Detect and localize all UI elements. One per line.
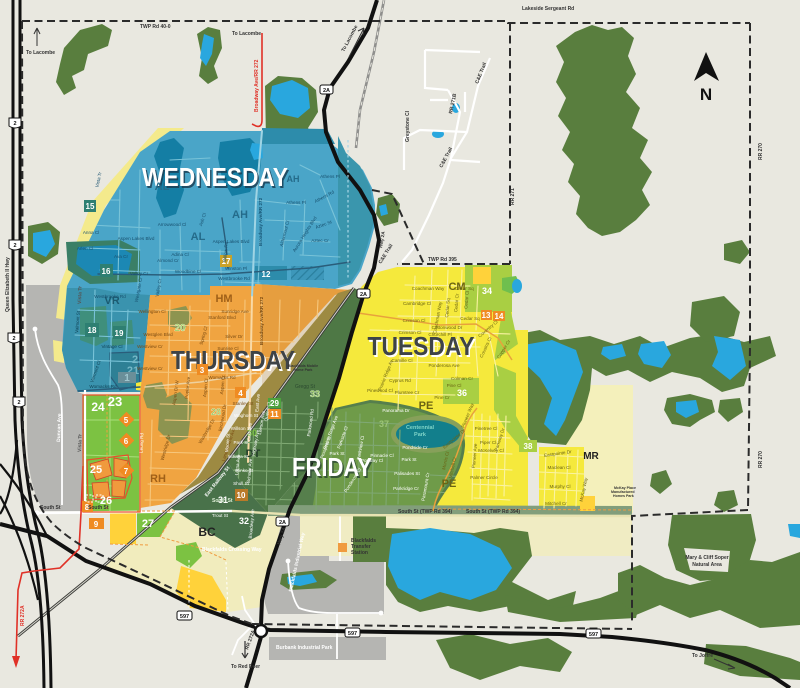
svg-text:Cambridge Cl: Cambridge Cl (403, 301, 431, 306)
svg-text:Colman Cr: Colman Cr (451, 376, 473, 381)
svg-text:15: 15 (86, 202, 95, 211)
svg-text:Pinetree Cl: Pinetree Cl (475, 426, 498, 431)
svg-text:Palisades St: Palisades St (394, 471, 420, 476)
svg-text:Pinewood Cl: Pinewood Cl (367, 388, 393, 393)
svg-text:Pine Cl: Pine Cl (447, 383, 462, 388)
svg-text:Westview Cr: Westview Cr (137, 344, 163, 349)
svg-text:2A: 2A (279, 520, 286, 526)
svg-text:Parkridge Cr: Parkridge Cr (393, 486, 419, 491)
svg-text:24: 24 (91, 400, 105, 414)
svg-text:7: 7 (124, 467, 129, 476)
svg-text:TWP Rd 40-0: TWP Rd 40-0 (140, 24, 171, 30)
svg-text:Coachman Way: Coachman Way (412, 286, 445, 291)
svg-text:Aspen Lakes Blvd: Aspen Lakes Blvd (213, 239, 250, 244)
svg-text:Vista Tr: Vista Tr (77, 434, 84, 452)
svg-text:Cottonwood Dr: Cottonwood Dr (432, 325, 463, 330)
svg-text:Westbrooke Rd: Westbrooke Rd (218, 276, 250, 281)
svg-text:Duncan Ave: Duncan Ave (56, 413, 63, 442)
svg-text:6: 6 (124, 437, 129, 446)
svg-text:Blackfalds Crossing Way: Blackfalds Crossing Way (202, 547, 262, 553)
svg-text:Sunridge Ave: Sunridge Ave (221, 309, 249, 314)
svg-text:1: 1 (124, 373, 130, 384)
svg-text:To Red Deer: To Red Deer (231, 664, 260, 670)
svg-text:Waghorn St: Waghorn St (234, 413, 259, 418)
svg-text:4: 4 (238, 389, 243, 398)
svg-text:Broadway Ave/RR 272: Broadway Ave/RR 272 (254, 59, 260, 112)
svg-text:Stanley St: Stanley St (233, 401, 255, 406)
svg-text:Westglen Blvd: Westglen Blvd (143, 332, 173, 337)
svg-text:RR 270: RR 270 (758, 143, 764, 160)
svg-text:Park St: Park St (401, 457, 417, 462)
svg-text:N: N (700, 85, 712, 104)
svg-text:Park St: Park St (329, 451, 345, 456)
svg-text:Vintage Cl: Vintage Cl (101, 344, 122, 349)
svg-text:TUESDAY: TUESDAY (368, 331, 475, 361)
svg-text:PE: PE (442, 478, 457, 490)
svg-text:18: 18 (88, 326, 97, 335)
svg-text:25: 25 (90, 464, 102, 476)
svg-text:HM: HM (215, 293, 232, 305)
svg-text:Churchill Pl: Churchill Pl (428, 332, 451, 337)
svg-text:Stanford Blvd: Stanford Blvd (208, 315, 236, 320)
svg-text:Westview Cr: Westview Cr (137, 366, 163, 371)
svg-text:Pondside Cr: Pondside Cr (402, 445, 428, 450)
svg-text:PE: PE (419, 400, 434, 412)
svg-text:AL: AL (191, 231, 206, 243)
svg-text:Broadway Ave/RR 272: Broadway Ave/RR 272 (259, 296, 264, 345)
svg-text:Murphy Cl: Murphy Cl (550, 484, 571, 489)
svg-text:Homes Park: Homes Park (613, 494, 634, 498)
svg-text:23: 23 (108, 394, 122, 409)
svg-text:Greystone Cl: Greystone Cl (405, 110, 411, 142)
svg-text:12: 12 (262, 270, 271, 279)
svg-text:Ponderosa Ave: Ponderosa Ave (428, 363, 460, 368)
svg-text:South St: South St (88, 505, 109, 511)
svg-text:Panorama Dr: Panorama Dr (382, 408, 410, 413)
svg-text:Cyprus Rd: Cyprus Rd (389, 378, 411, 383)
svg-text:Gregg St: Gregg St (295, 384, 316, 390)
svg-text:TWP Rd 395: TWP Rd 395 (428, 257, 457, 263)
svg-text:Station: Station (351, 550, 368, 556)
svg-text:Aztec Cr: Aztec Cr (311, 238, 329, 243)
svg-text:South St: South St (40, 505, 61, 511)
svg-text:Anna Cl: Anna Cl (83, 230, 99, 235)
svg-text:Cedar Sq: Cedar Sq (460, 316, 480, 321)
svg-text:Mary & Cliff Soper: Mary & Cliff Soper (685, 555, 728, 561)
svg-text:Mitchell Cr: Mitchell Cr (545, 501, 567, 506)
svg-text:AH: AH (232, 209, 248, 221)
svg-text:Vista Tr: Vista Tr (77, 286, 84, 304)
svg-text:Athens Pl: Athens Pl (286, 200, 306, 205)
svg-text:Winston Pl: Winston Pl (225, 266, 247, 271)
svg-text:AH: AH (287, 174, 300, 184)
svg-text:27: 27 (142, 518, 154, 530)
svg-text:Westbrooke Rd: Westbrooke Rd (94, 294, 126, 299)
svg-text:16: 16 (102, 267, 111, 276)
svg-text:Arlen Cl: Arlen Cl (77, 246, 93, 251)
svg-text:Leung Rd: Leung Rd (139, 432, 145, 453)
svg-text:Centennial: Centennial (406, 425, 435, 431)
svg-text:To Lacombe: To Lacombe (26, 50, 55, 56)
svg-text:Silver Dr: Silver Dr (225, 334, 243, 339)
svg-text:2A: 2A (360, 292, 367, 298)
svg-text:Adina Cl: Adina Cl (171, 252, 188, 257)
svg-text:Broadway Ave/RR 272: Broadway Ave/RR 272 (258, 197, 263, 246)
svg-text:11: 11 (270, 410, 279, 419)
svg-text:19: 19 (115, 329, 124, 338)
svg-text:Maclean Cl: Maclean Cl (548, 465, 571, 470)
svg-text:Burbank Industrial Park: Burbank Industrial Park (276, 645, 333, 651)
svg-text:Womacks Rd: Womacks Rd (89, 384, 117, 389)
svg-text:Plumtree Cr: Plumtree Cr (395, 390, 420, 395)
svg-text:Piper Cl: Piper Cl (480, 440, 496, 445)
svg-text:Lakeside Sergeant Rd: Lakeside Sergeant Rd (522, 6, 574, 12)
svg-text:RR 271: RR 271 (510, 188, 516, 205)
svg-text:Arrowwood Cl: Arrowwood Cl (158, 222, 187, 227)
svg-text:34: 34 (482, 286, 492, 296)
svg-text:South St (TWP Rd 394): South St (TWP Rd 394) (398, 509, 452, 515)
svg-text:BC: BC (198, 525, 216, 539)
svg-text:McKelvey Cl: McKelvey Cl (478, 448, 504, 453)
svg-text:South St: South St (212, 498, 233, 504)
svg-text:Palmer Circle: Palmer Circle (470, 475, 498, 480)
svg-text:Home Park: Home Park (294, 368, 313, 372)
svg-text:Valley Cr: Valley Cr (130, 271, 149, 276)
svg-text:2: 2 (13, 243, 16, 249)
svg-text:Crimson Cl: Crimson Cl (403, 318, 426, 323)
svg-text:38: 38 (524, 442, 533, 451)
svg-text:To Joffre: To Joffre (692, 653, 713, 659)
svg-text:Park: Park (414, 432, 427, 438)
svg-text:AL: AL (155, 181, 170, 193)
svg-text:Wellington Cl: Wellington Cl (139, 309, 166, 314)
svg-text:2: 2 (12, 336, 15, 342)
svg-text:Queen Elizabeth II Hwy: Queen Elizabeth II Hwy (5, 257, 11, 312)
svg-text:597: 597 (348, 631, 357, 637)
svg-text:36: 36 (457, 388, 467, 398)
svg-text:2: 2 (13, 121, 16, 127)
svg-text:10: 10 (237, 491, 246, 500)
svg-text:RH: RH (150, 473, 166, 485)
svg-text:Portway Cl: Portway Cl (361, 458, 383, 463)
svg-text:Camille Cl: Camille Cl (392, 358, 413, 363)
svg-text:2A: 2A (323, 88, 330, 94)
svg-text:Athens Pl: Athens Pl (320, 174, 340, 179)
svg-text:37: 37 (379, 419, 389, 429)
svg-text:32: 32 (239, 516, 249, 526)
svg-text:MR: MR (583, 451, 599, 462)
svg-text:Cedar Sq: Cedar Sq (454, 286, 474, 291)
svg-text:33: 33 (310, 389, 320, 399)
svg-text:Aspen Lakes Blvd: Aspen Lakes Blvd (118, 236, 155, 241)
svg-text:RR 270: RR 270 (758, 451, 764, 468)
svg-text:South St (TWP Rd 394): South St (TWP Rd 394) (466, 509, 520, 515)
svg-text:5: 5 (124, 416, 129, 425)
svg-text:Trout St: Trout St (212, 513, 229, 518)
svg-text:Woodbine Cl: Woodbine Cl (175, 269, 201, 274)
svg-text:13: 13 (482, 311, 491, 320)
svg-text:Pine Cr: Pine Cr (434, 395, 450, 400)
svg-text:20: 20 (174, 323, 186, 334)
svg-text:Sunrise Cl: Sunrise Cl (217, 346, 238, 351)
svg-text:To Lacombe: To Lacombe (232, 31, 261, 37)
svg-text:597: 597 (180, 614, 189, 620)
svg-text:2: 2 (17, 400, 20, 406)
svg-text:Almond Cr: Almond Cr (157, 258, 179, 263)
svg-text:Crimson Cl: Crimson Cl (399, 330, 422, 335)
svg-text:RR 272A: RR 272A (20, 605, 26, 626)
svg-text:Natural Area: Natural Area (692, 562, 722, 568)
svg-text:Ava Cr: Ava Cr (114, 254, 128, 259)
svg-text:3: 3 (200, 366, 205, 375)
svg-text:9: 9 (94, 520, 99, 529)
svg-text:597: 597 (589, 632, 598, 638)
